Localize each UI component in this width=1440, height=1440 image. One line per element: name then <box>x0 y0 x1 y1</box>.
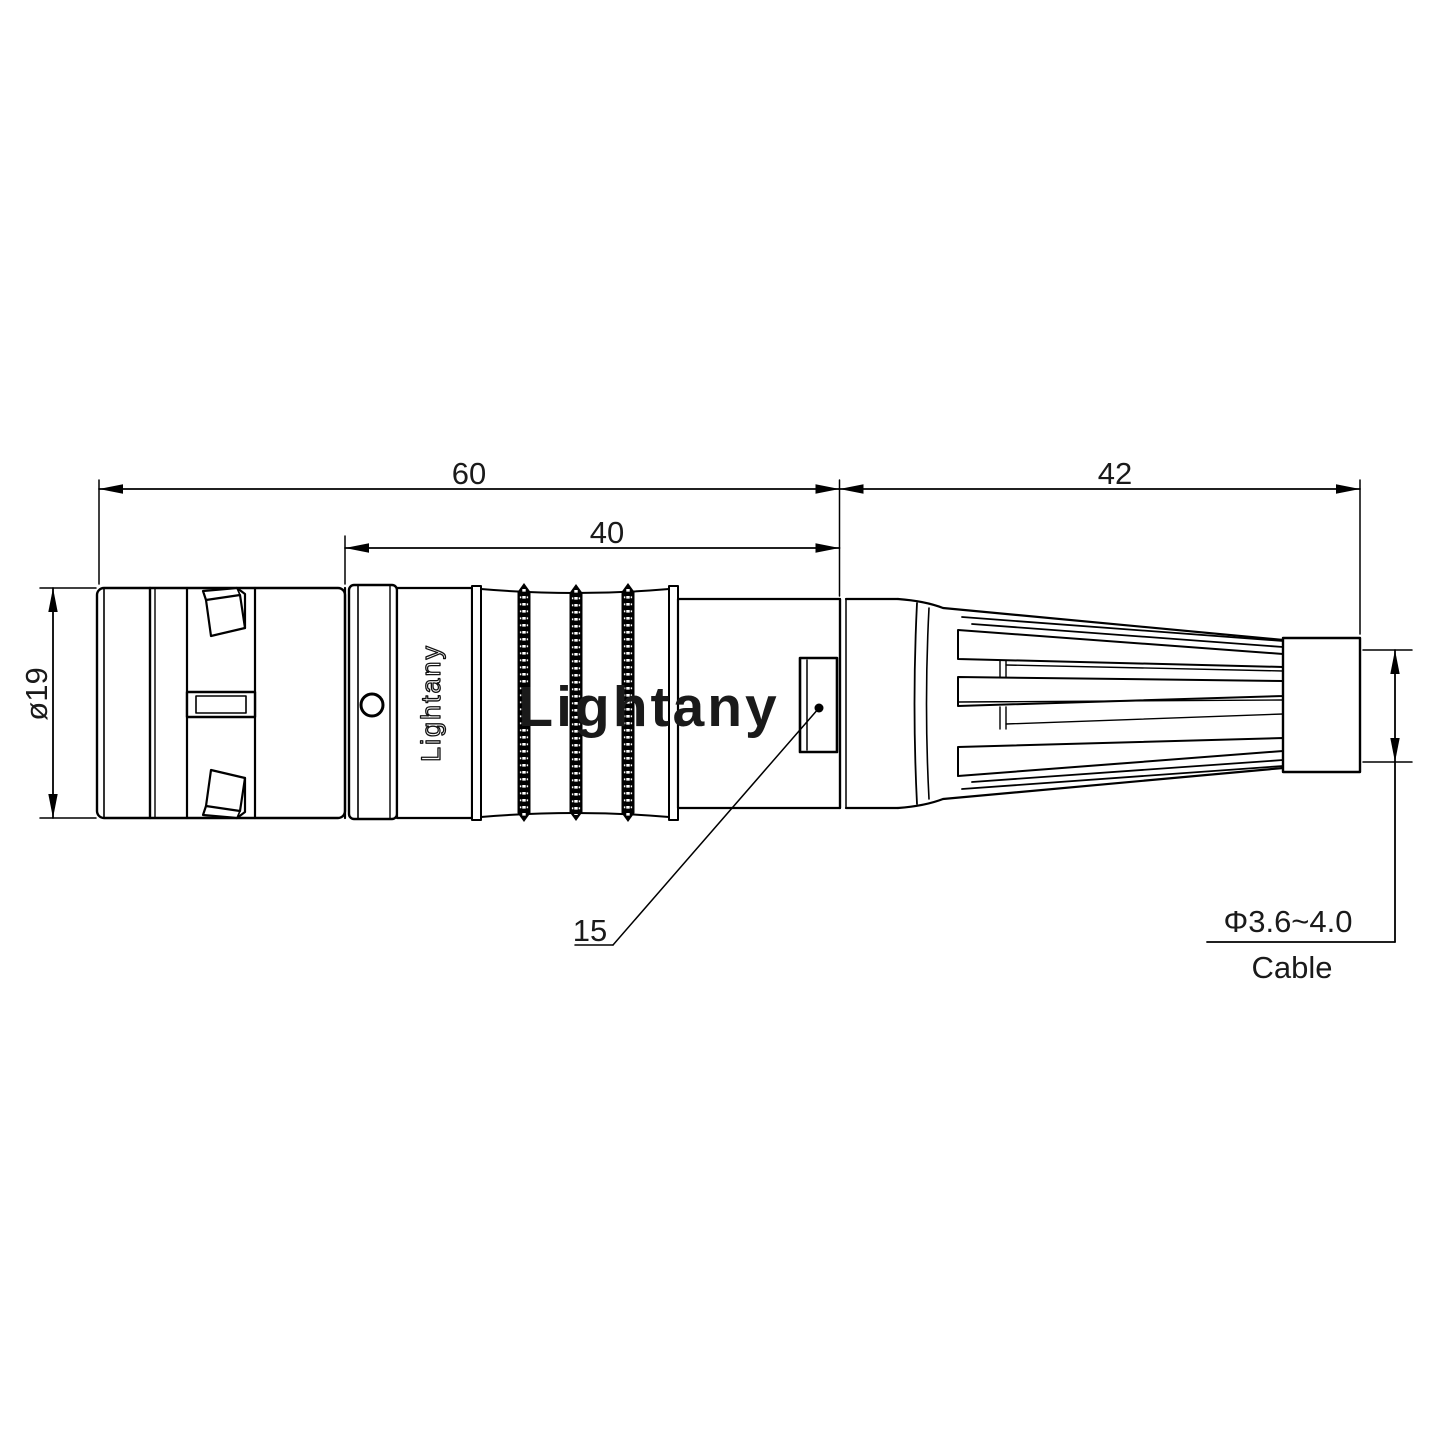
body-brand-text: Lightany <box>416 644 446 762</box>
dimension-60: 60 <box>99 456 840 596</box>
arrowhead-left <box>345 543 369 552</box>
arrowhead-right <box>1336 484 1360 493</box>
dim-diameter-value: ø19 <box>19 667 54 720</box>
top-alignment-key <box>203 588 245 636</box>
cable-ferrule <box>1283 638 1360 772</box>
watermark-text: Lightany <box>518 675 780 739</box>
arrowhead-left <box>840 484 864 493</box>
dim-60-value: 60 <box>452 456 486 491</box>
arrowhead-down <box>1390 738 1399 762</box>
front-coupling-nut <box>97 588 345 818</box>
boot-cone-top-outline <box>898 599 1283 640</box>
latch-window <box>187 692 255 717</box>
mid-barrel: Lightany <box>397 588 472 818</box>
dim-cable-caption: Cable <box>1252 950 1333 985</box>
dimension-diameter-19: ø19 <box>19 588 96 818</box>
dim-40-value: 40 <box>590 515 624 550</box>
collar-ring <box>349 585 397 819</box>
boot-base-rim-line-2 <box>927 608 930 799</box>
arrowhead-down <box>48 794 57 818</box>
dim-42-value: 42 <box>1098 456 1132 491</box>
boot-fins <box>958 617 1283 789</box>
arrowhead-up <box>1390 650 1399 674</box>
grip-left-cap <box>472 586 481 820</box>
boot-base-rim-line <box>915 603 918 804</box>
arrowhead-up <box>48 588 57 612</box>
arrowhead-left <box>99 484 123 493</box>
dimension-40: 40 <box>345 515 840 584</box>
collar-hole <box>361 694 383 716</box>
dim-cable-range-value: Φ3.6~4.0 <box>1223 904 1352 939</box>
dim-15-value: 15 <box>573 913 607 948</box>
connector-technical-drawing: Lightany <box>0 0 1440 1440</box>
bottom-alignment-key <box>203 770 245 818</box>
arrowhead-right <box>816 543 840 552</box>
drawing-canvas: Lightany <box>0 0 1440 1440</box>
fin-gap-line-lower <box>1006 714 1283 724</box>
strain-relief-boot <box>846 599 1360 808</box>
arrowhead-right <box>816 484 840 493</box>
rear-window <box>800 658 837 752</box>
